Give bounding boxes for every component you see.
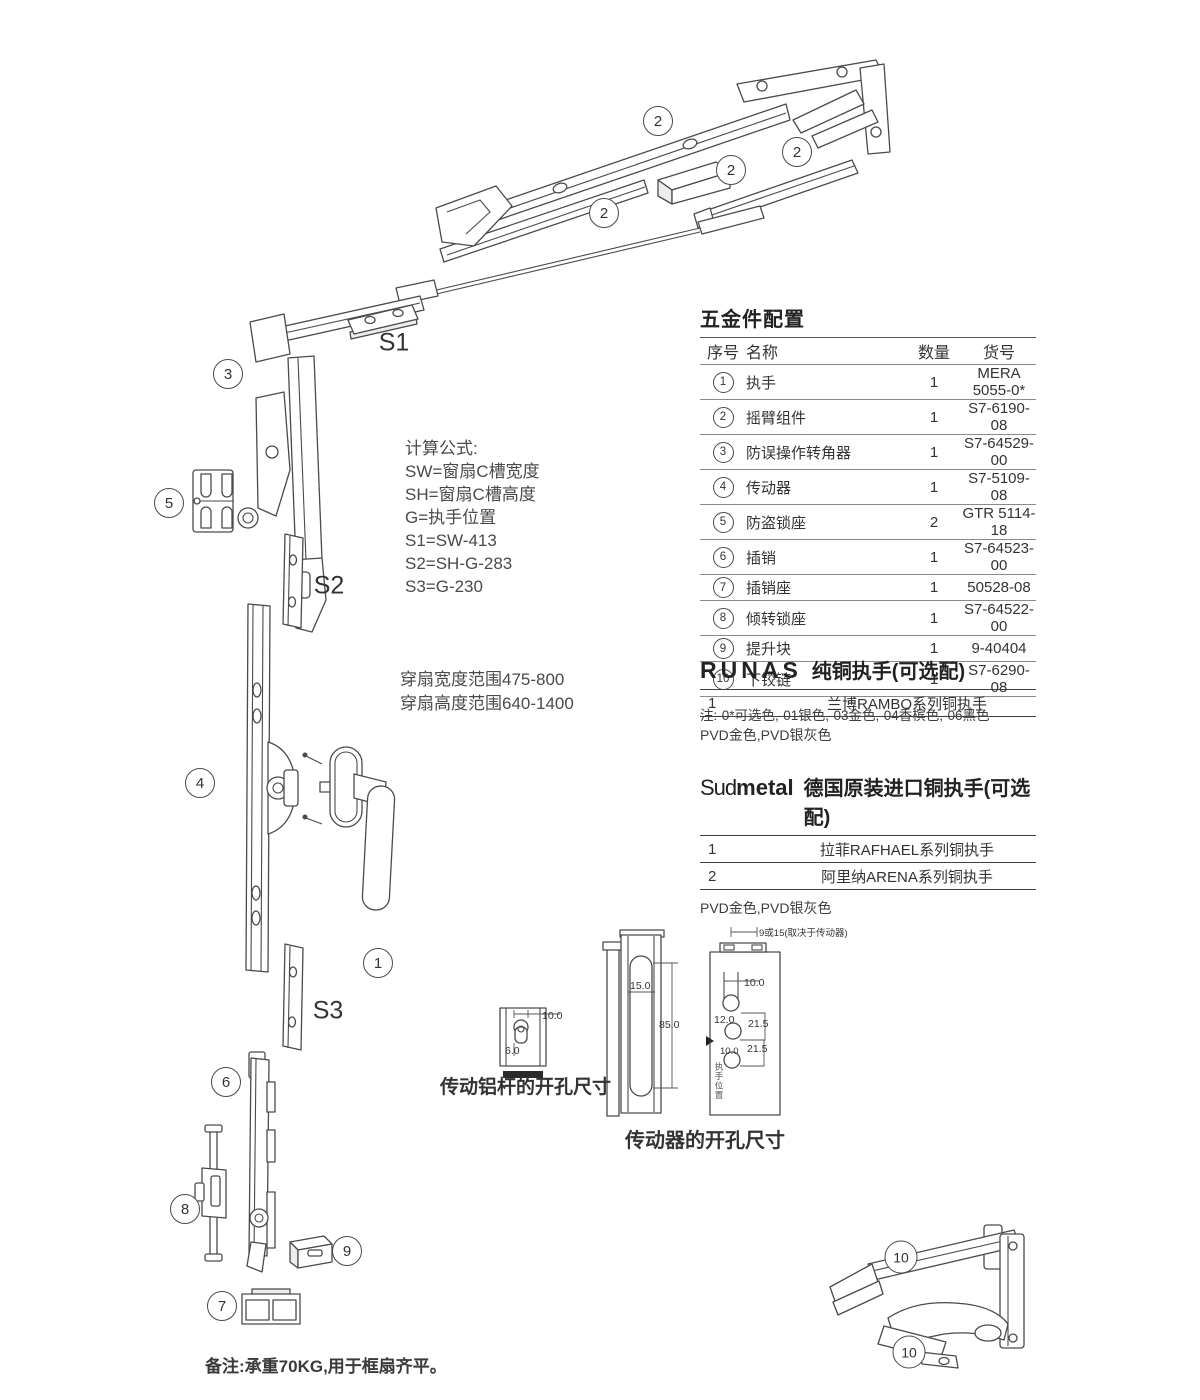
runas-brand: RUNAS (700, 657, 802, 684)
plate-dim-5: 10.0 (720, 1046, 739, 1057)
parts-table-title: 五金件配置 (700, 303, 1036, 332)
table-row: 1执手1MERA 5055-0* (700, 365, 1036, 400)
row-no: 6 (713, 547, 734, 568)
runas-row-no: 1 (700, 695, 778, 712)
formula-line: G=执手位置 (405, 506, 540, 529)
row-qty: 2 (906, 505, 962, 540)
callout-swing-arm-2: 2 (782, 137, 812, 167)
table-row: 6插销1S7-64523-00 (700, 540, 1036, 575)
formula-line: SW=窗扇C槽宽度 (405, 460, 540, 483)
sudmetal-row-no: 2 (700, 868, 778, 885)
sash-height-range: 穿扇高度范围640-1400 (400, 692, 574, 716)
row-qty: 1 (906, 365, 962, 400)
sudmetal-row-no: 1 (700, 841, 778, 858)
tilt-keeper-drawing (195, 1125, 226, 1261)
row-name: 防盗锁座 (746, 505, 906, 540)
sudmetal-brand-suffix: metal (736, 775, 793, 800)
row-qty: 1 (906, 470, 962, 505)
callout-swing-arm-1: 2 (643, 106, 673, 136)
formula-block: 计算公式: SW=窗扇C槽宽度 SH=窗扇C槽高度 G=执手位置 S1=SW-4… (405, 437, 540, 598)
row-no: 8 (713, 608, 734, 629)
row-name: 倾转锁座 (746, 601, 906, 636)
label-s2: S2 (314, 572, 345, 601)
row-code: S7-64522-00 (962, 601, 1036, 636)
header-no: 序号 (700, 338, 746, 365)
sudmetal-row-name: 拉菲RAFHAEL系列铜执手 (778, 839, 1036, 860)
header-qty: 数量 (906, 338, 962, 365)
plate-dim-1: 10.0 (744, 977, 765, 989)
formula-line: S2=SH-G-283 (405, 552, 540, 575)
lift-block-drawing (290, 1236, 332, 1268)
row-qty: 1 (906, 400, 962, 435)
rod-height-dim: 6.0 (505, 1045, 520, 1057)
header-code: 货号 (962, 338, 1036, 365)
swing-arm-assembly-drawing (396, 60, 890, 304)
handle-drawing (320, 747, 395, 911)
sash-width-range: 穿扇宽度范围475-800 (400, 668, 574, 692)
rod-hole-dim-label: 传动铝杆的开孔尺寸 (440, 1072, 611, 1099)
row-code: S7-5109-08 (962, 470, 1036, 505)
sudmetal-brand: Sudmetal (700, 775, 794, 801)
row-no: 5 (713, 512, 734, 533)
row-no: 1 (713, 372, 734, 393)
driver-plate-dimension-drawing: 9或15(取决于传动器) 10.0 12.0 21.5 21.5 10.0 (706, 927, 848, 1115)
row-name: 插销座 (746, 575, 906, 601)
row-qty: 1 (906, 540, 962, 575)
row-code: MERA 5055-0* (962, 365, 1036, 400)
parts-table: 序号 名称 数量 货号 1执手1MERA 5055-0* 2摇臂组件1S7-61… (700, 337, 1036, 697)
driver-slot-dimension-drawing: 15.0 85.0 (603, 930, 680, 1116)
sudmetal-row: 2 阿里纳ARENA系列铜执手 (700, 863, 1036, 890)
row-no: 2 (713, 407, 734, 428)
handle-position-vertical-label: 执手位置 (713, 1062, 725, 1100)
s2-plate-drawing (283, 534, 303, 628)
slot-width-dim: 15.0 (630, 980, 651, 992)
sudmetal-finish-note: PVD金色,PVD银灰色 (700, 898, 1036, 918)
slot-height-dim: 85.0 (659, 1019, 680, 1031)
sudmetal-title: 德国原装进口铜执手(可选配) (804, 772, 1036, 830)
row-name: 执手 (746, 365, 906, 400)
driver-gear-drawing (246, 604, 322, 972)
row-code: S7-64523-00 (962, 540, 1036, 575)
formula-line: SH=窗扇C槽高度 (405, 483, 540, 506)
row-qty: 1 (906, 435, 962, 470)
row-no: 3 (713, 442, 734, 463)
security-keeper-drawing (193, 470, 233, 532)
driver-hole-dim-label: 传动器的开孔尺寸 (625, 1124, 785, 1153)
plate-dim-4: 21.5 (747, 1043, 768, 1055)
sash-range-block: 穿扇宽度范围475-800 穿扇高度范围640-1400 (400, 668, 574, 715)
row-code: S7-64529-00 (962, 435, 1036, 470)
plate-top-dim: 9或15(取决于传动器) (759, 927, 848, 939)
rod-width-dim: 10.0 (542, 1010, 563, 1022)
row-code: S7-6190-08 (962, 400, 1036, 435)
bottom-hinge-drawing (830, 1225, 1024, 1368)
callout-hinge-bottom: 10 (893, 1336, 926, 1369)
runas-optional-section: RUNAS 纯铜执手(可选配) 1 兰博RAMBO系列铜执手 PVD金色,PVD… (700, 655, 1036, 745)
s3-plate-drawing (283, 944, 303, 1050)
runas-row-name: 兰博RAMBO系列铜执手 (778, 693, 1036, 714)
label-s1: S1 (379, 329, 410, 358)
formula-line: S1=SW-413 (405, 529, 540, 552)
table-row: 5防盗锁座2GTR 5114-18 (700, 505, 1036, 540)
header-name: 名称 (746, 338, 906, 365)
row-code: 50528-08 (962, 575, 1036, 601)
table-row: 4传动器1S7-5109-08 (700, 470, 1036, 505)
table-row: 7插销座150528-08 (700, 575, 1036, 601)
callout-handle: 1 (363, 948, 393, 978)
sudmetal-optional-section: Sudmetal 德国原装进口铜执手(可选配) 1 拉菲RAFHAEL系列铜执手… (700, 772, 1036, 918)
exploded-parts-diagram-page: 10.0 6.0 15.0 85.0 9或15(取决于传动器) (0, 0, 1200, 1400)
plate-dim-3: 21.5 (748, 1018, 769, 1030)
callout-espag-bolt: 6 (211, 1067, 241, 1097)
runas-row: 1 兰博RAMBO系列铜执手 (700, 690, 1036, 717)
sudmetal-row: 1 拉菲RAFHAEL系列铜执手 (700, 836, 1036, 863)
callout-corner-drive: 3 (213, 359, 243, 389)
plate-dim-2: 12.0 (714, 1014, 735, 1026)
row-qty: 1 (906, 601, 962, 636)
callout-hinge-top: 10 (885, 1241, 918, 1274)
row-name: 防误操作转角器 (746, 435, 906, 470)
formula-title: 计算公式: (405, 437, 540, 460)
callout-swing-arm-4: 2 (589, 198, 619, 228)
row-qty: 1 (906, 575, 962, 601)
espag-bolt-drawing (247, 1052, 275, 1272)
load-capacity-footnote: 备注:承重70KG,用于框扇齐平。 (205, 1352, 447, 1377)
row-no: 7 (713, 577, 734, 598)
sudmetal-headline: Sudmetal 德国原装进口铜执手(可选配) (700, 772, 1036, 836)
callout-driver: 4 (185, 768, 215, 798)
row-name: 摇臂组件 (746, 400, 906, 435)
parts-table-header-row: 序号 名称 数量 货号 (700, 338, 1036, 365)
row-name: 传动器 (746, 470, 906, 505)
runas-headline: RUNAS 纯铜执手(可选配) (700, 655, 1036, 690)
table-row: 8倾转锁座1S7-64522-00 (700, 601, 1036, 636)
callout-tilt-keeper: 8 (170, 1194, 200, 1224)
row-name: 插销 (746, 540, 906, 575)
callout-bolt-keeper: 7 (207, 1291, 237, 1321)
row-code: GTR 5114-18 (962, 505, 1036, 540)
runas-finish-note: PVD金色,PVD银灰色 (700, 725, 1036, 745)
callout-swing-arm-3: 2 (716, 155, 746, 185)
bolt-keeper-drawing (242, 1289, 300, 1324)
sudmetal-brand-prefix: Sud (700, 775, 736, 800)
rod-hole-dimension-drawing: 10.0 6.0 (500, 1008, 563, 1078)
formula-line: S3=G-230 (405, 575, 540, 598)
runas-title: 纯铜执手(可选配) (812, 655, 965, 684)
callout-lift-block: 9 (332, 1236, 362, 1266)
callout-security-keeper: 5 (154, 488, 184, 518)
row-no: 4 (713, 477, 734, 498)
table-row: 2摇臂组件1S7-6190-08 (700, 400, 1036, 435)
table-row: 3防误操作转角器1S7-64529-00 (700, 435, 1036, 470)
sudmetal-row-name: 阿里纳ARENA系列铜执手 (778, 866, 1036, 887)
label-s3: S3 (313, 997, 344, 1026)
